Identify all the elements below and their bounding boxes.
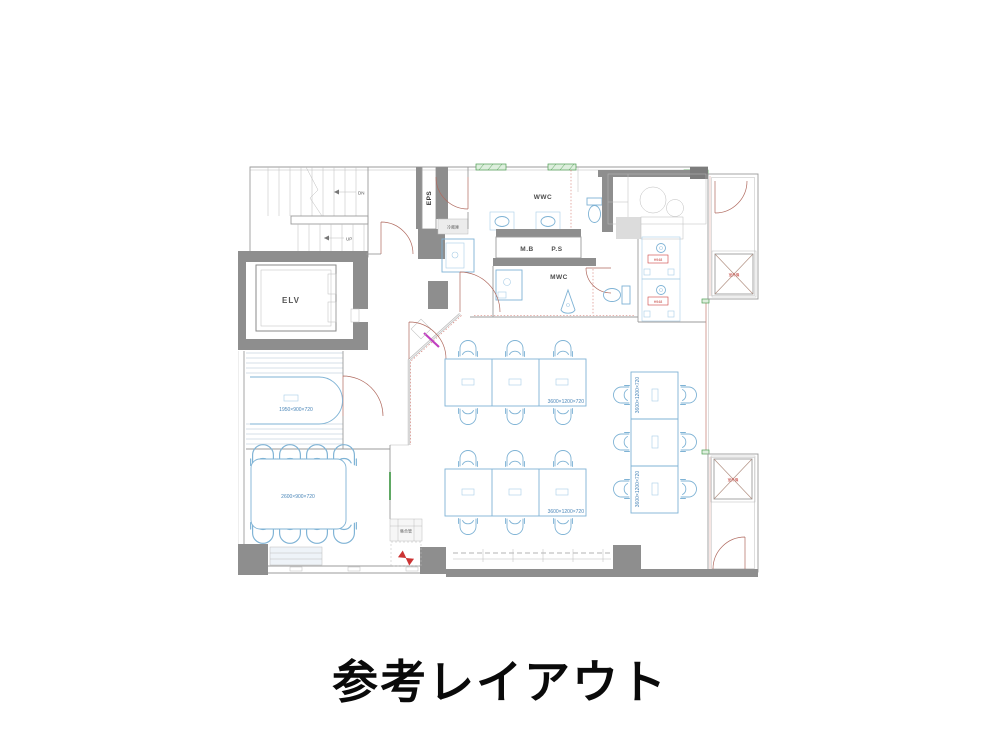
refrigerator-label: 冷蔵庫 (447, 224, 459, 230)
urinal-icon (561, 290, 575, 313)
balcony-top: 室外機 (708, 174, 758, 299)
screenshot-canvas: DN UP ELV (0, 0, 1000, 750)
desk-bank-b-size: 3600×1200×720 (548, 509, 585, 515)
pipe-box-label: 集合管 (400, 528, 412, 534)
elevator-shaft: ELV (238, 251, 368, 350)
stairs-dn-label: DN (358, 191, 365, 196)
appliance-unit: H948 (642, 279, 680, 321)
desk-bank-c: 3600×1200×720 3600×1200×720 (614, 372, 697, 513)
alarm-valve-icon (398, 551, 414, 566)
south-wall (420, 545, 758, 577)
desk-bank-c-bottom-size: 3600×1200×720 (635, 471, 641, 508)
appliance-tag: H948 (654, 300, 663, 304)
outdoor-unit-label: 室外機 (729, 272, 740, 277)
caption: 参考レイアウト (0, 646, 1000, 712)
lounge-area: 2600×900×720 (251, 445, 357, 544)
outdoor-unit: 室外機 (711, 456, 755, 502)
toilet-icon (587, 198, 602, 223)
stairwell: DN UP (250, 167, 368, 257)
refrigerator-box: 冷蔵庫 (438, 219, 468, 234)
floor-plan-drawing: DN UP ELV (238, 162, 763, 577)
north-wall (250, 164, 708, 179)
mb-label: M.B (520, 246, 533, 253)
kitchenette (608, 174, 706, 239)
meeting-room: 1950×900×720 (246, 351, 390, 449)
wwc-label: WWC (534, 194, 552, 201)
lounge-table-size: 2600×900×720 (281, 494, 315, 500)
toilet-icon (604, 286, 631, 304)
meeting-table-size: 1950×900×720 (279, 407, 313, 413)
floor-plan: DN UP ELV (238, 162, 763, 577)
appliance-tag: H948 (654, 258, 663, 262)
eps-shaft: EPS (416, 167, 448, 259)
elevator-label: ELV (282, 296, 300, 305)
ps-label: P.S (551, 246, 562, 253)
desk-bank-c-top-size: 3600×1200×720 (635, 377, 641, 414)
column (613, 545, 641, 575)
desk-bank-a-size: 3600×1200×720 (548, 399, 585, 405)
mb-ps-box: M.B P.S (493, 229, 596, 266)
eps-label: EPS (426, 191, 433, 206)
meeting-table: 1950×900×720 (250, 377, 343, 424)
appliance-unit: H948 (642, 237, 680, 279)
outdoor-unit-label: 室外機 (728, 477, 739, 482)
pipe-box: 集合管 (390, 519, 422, 566)
stairs-up-label: UP (346, 237, 352, 242)
stair-arrow-icon (334, 190, 339, 195)
desk-bank-a: 3600×1200×720 (445, 341, 586, 425)
desk-bank-b: 3600×1200×720 (445, 451, 586, 535)
mwc-room: MWC (470, 234, 706, 322)
outdoor-unit: 室外機 (712, 251, 756, 297)
mwc-label: MWC (550, 274, 568, 281)
stair-arrow-icon (324, 236, 329, 241)
column (420, 547, 446, 574)
balcony-bottom: 室外機 (708, 454, 758, 572)
